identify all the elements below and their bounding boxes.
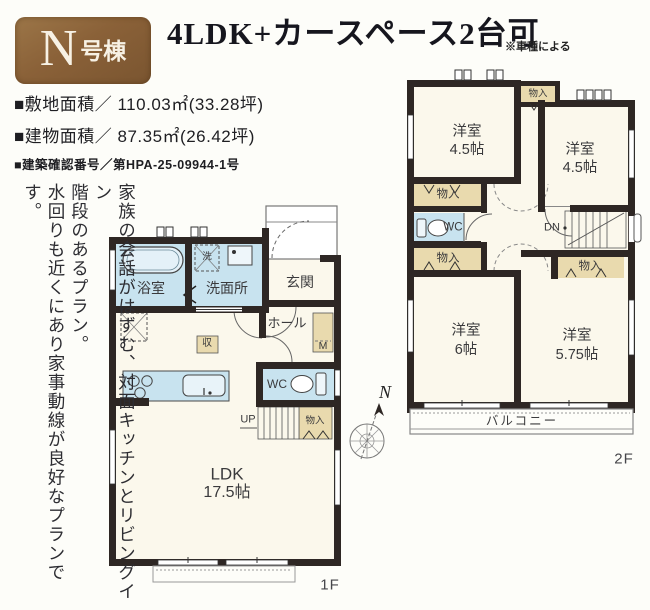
room2-size-label: 4.5帖	[563, 161, 598, 176]
room4-name-label: 洋室	[563, 329, 592, 344]
compass-north-label: N	[379, 383, 391, 401]
washroom-label: 洗面所	[206, 281, 248, 295]
stairs-dn-label: DN	[544, 223, 560, 234]
room2-name-label: 洋室	[566, 143, 595, 158]
unit-badge: N 号棟	[15, 17, 151, 84]
closet-2f-c-label: 物入	[437, 253, 460, 265]
room1-name-label: 洋室	[453, 125, 482, 140]
storage-label: 収	[202, 339, 212, 349]
title-note: ※車種による	[505, 38, 571, 54]
floor-1f-label: 1F	[320, 578, 340, 593]
balcony-label: バルコニー	[486, 415, 558, 428]
area-details: ■敷地面積／ 110.03㎡(33.28坪) ■建物面積／ 87.35㎡(26.…	[14, 90, 264, 180]
description-line: 水回りも近くにあり家事動線が良好なプランです。	[20, 183, 67, 610]
stairs-up-label: UP	[240, 415, 255, 426]
ldk-name-label: LDK	[210, 466, 243, 483]
room3-name-label: 洋室	[452, 324, 481, 339]
closet-2f-top-label: 物入	[528, 89, 547, 99]
page-title: 4LDK+カースペース2台可	[167, 8, 540, 53]
ldk-size-label: 17.5帖	[203, 485, 250, 501]
plan-description: 家族の会話がはずむ、対面キッチンとリビングイン 階段のあるプラン。 水回りも近く…	[20, 183, 138, 610]
closet-2f-b-label: 物入	[437, 189, 460, 201]
hall-label: ホール	[267, 317, 306, 330]
wc-1f-label: WC	[267, 378, 287, 390]
bath-label: 浴室	[137, 281, 165, 295]
building-area: ■建物面積／ 87.35㎡(26.42坪)	[14, 122, 264, 147]
entrance-label: 玄関	[286, 275, 314, 289]
meter-box-label: M	[319, 341, 328, 352]
site-area: ■敷地面積／ 110.03㎡(33.28坪)	[14, 90, 264, 115]
description-line: 階段のあるプラン。	[67, 183, 91, 610]
room4-size-label: 5.75帖	[556, 348, 599, 363]
wc-2f-label: WC	[443, 222, 462, 234]
unit-badge-suffix: 号棟	[80, 32, 126, 66]
description-line: 家族の会話がはずむ、対面キッチンとリビングイン	[91, 183, 138, 610]
floorplan-1f	[109, 206, 341, 582]
room1-size-label: 4.5帖	[450, 143, 485, 158]
closet-1f-label: 物入	[305, 416, 324, 426]
closet-2f-d-label: 物入	[579, 261, 602, 273]
confirmation-number: ■建築確認番号／第HPA-25-09944-1号	[14, 154, 264, 173]
compass-icon	[350, 403, 384, 459]
laundry-label: 洗	[202, 252, 212, 262]
unit-badge-letter: N	[40, 17, 78, 81]
floorplan-flyer: N 号棟 4LDK+カースペース2台可 ※車種による ■敷地面積／ 110.03…	[0, 0, 650, 610]
floor-2f-label: 2F	[614, 452, 634, 467]
room3-size-label: 6帖	[455, 343, 478, 358]
